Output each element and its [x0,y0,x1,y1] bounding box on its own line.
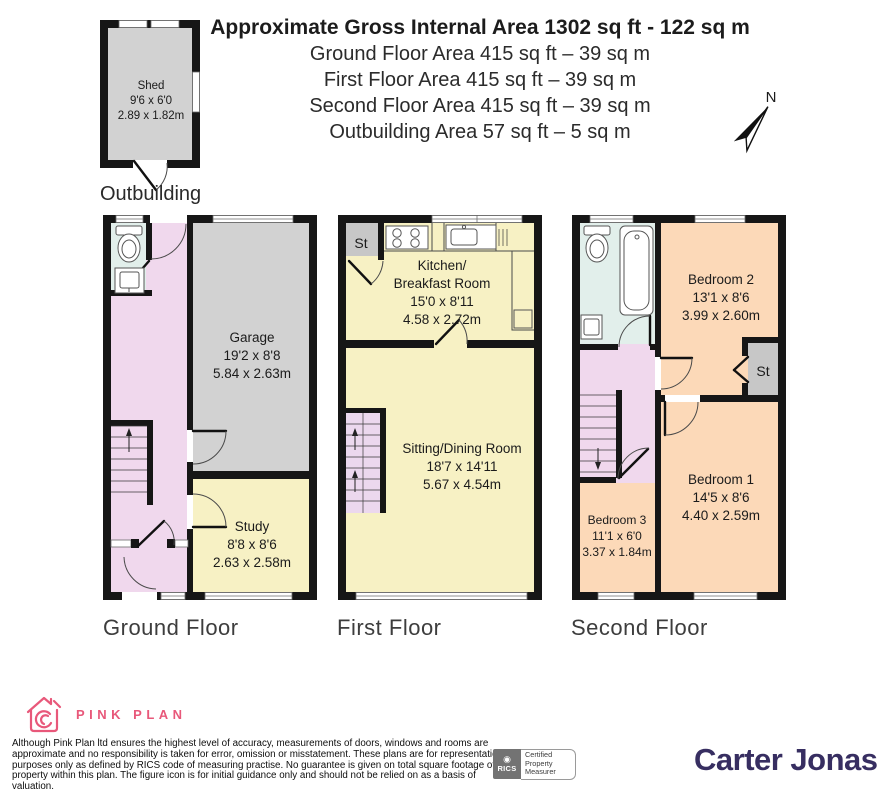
sitting-dims-m: 5.67 x 4.54m [423,477,501,492]
shed-window-top-right [151,21,179,28]
bedroom1-label: Bedroom 1 [688,472,754,487]
first-floor-caption: First Floor [337,615,442,641]
store-label-first: St [354,235,367,251]
bathtub-icon [620,226,653,315]
shed-plan: Shed 9'6 x 6'0 2.89 x 1.82m [100,20,200,190]
hob-icon [386,226,428,249]
disclaimer-line: approximate and no responsibility is tak… [12,750,512,761]
sitting-dims-ft: 18'7 x 14'11 [427,459,498,474]
rics-logo-box: ◉ RICS [493,749,521,779]
disclaimer-line: property within this plan. The figure ic… [12,771,512,793]
bedroom3-dims-m: 3.37 x 1.84m [582,545,651,559]
garage-dims-m: 5.84 x 2.63m [213,366,291,381]
bedroom3-label: Bedroom 3 [588,513,647,527]
garage-dims-ft: 19'2 x 8'8 [224,348,281,363]
rics-badge: ◉ RICS Certified Property Measurer [493,749,576,780]
first-floor-plan: St Kitchen/ Breakfast Room 15'0 x 8'11 4… [338,215,542,600]
rics-cert-line: Measurer [525,768,575,777]
rics-wordmark: RICS [497,764,516,773]
toilet-icon-second [584,226,610,262]
north-arrow-icon: N [734,89,777,151]
kitchen-dims-ft: 15'0 x 8'11 [410,294,473,309]
kitchen-label-2: Breakfast Room [394,276,491,291]
sink-icon [115,268,144,293]
ground-floor-plan: Garage 19'2 x 8'8 5.84 x 2.63m Study 8'8… [103,215,317,600]
study-window [205,593,292,600]
bedroom3-window [598,593,634,600]
bedroom2-dims-ft: 13'1 x 8'6 [693,290,750,305]
sitting-window [356,593,527,600]
rics-lion-icon: ◉ [503,755,511,764]
agent-logo: Carter Jonas [694,742,878,778]
bedroom3-dims-ft: 11'1 x 6'0 [592,529,642,543]
bedroom1-window [694,593,757,600]
study-label: Study [235,519,270,534]
floorplan-canvas: N Shed 9'6 x 6'0 2.89 x 1.82m [0,0,882,800]
bedroom2-label: Bedroom 2 [688,272,754,287]
pink-plan-wordmark: PINK PLAN [76,707,187,722]
north-label: N [766,89,777,106]
study-dims-m: 2.63 x 2.58m [213,555,291,570]
shed-dims-ft: 9'6 x 6'0 [130,95,172,107]
garage-label: Garage [229,330,274,345]
bedroom2-window [695,216,745,223]
shed-label: Shed [138,80,165,92]
wc-window [116,216,143,223]
bedroom2-dims-m: 3.99 x 2.60m [682,308,760,323]
bedroom1-dims-m: 4.40 x 2.59m [682,508,760,523]
kitchen-window [432,216,522,223]
hall-bottom-window [161,593,185,600]
store-label-second: St [756,363,769,379]
toilet-icon [116,226,142,262]
shed-window-top-left [119,21,147,28]
second-floor-plan: Bedroom 2 13'1 x 8'6 3.99 x 2.60m St Bed… [572,215,786,600]
entrance-door-gap [150,215,187,223]
bedroom1-dims-ft: 14'5 x 8'6 [693,490,750,505]
second-floor-caption: Second Floor [571,615,708,641]
shed-window-right [193,72,200,112]
shed-dims-m: 2.89 x 1.82m [118,110,184,122]
rics-cert-box: Certified Property Measurer [521,749,576,780]
garage-door [213,216,293,223]
ground-floor-caption: Ground Floor [103,615,239,641]
front-door-gap [122,592,157,600]
kitchen-label-1: Kitchen/ [418,258,467,273]
basin-icon [581,315,602,339]
sitting-label: Sitting/Dining Room [402,441,521,456]
first-floor-stairs [346,408,386,513]
outbuilding-caption: Outbuilding [100,183,201,206]
disclaimer-text: Although Pink Plan ltd ensures the highe… [12,739,512,793]
kitchen-dims-m: 4.58 x 2.72m [403,312,481,327]
bathroom-window [590,216,633,223]
study-dims-ft: 8'8 x 8'6 [227,537,276,552]
